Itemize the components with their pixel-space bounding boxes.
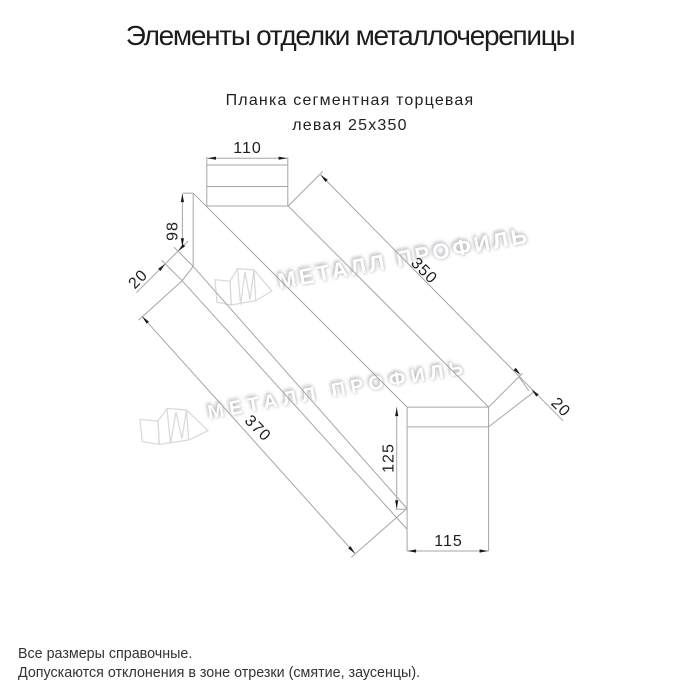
svg-text:350: 350 <box>407 255 440 288</box>
svg-text:98: 98 <box>165 221 182 241</box>
svg-text:125: 125 <box>381 443 398 473</box>
svg-text:20: 20 <box>547 395 573 421</box>
svg-text:115: 115 <box>434 533 463 550</box>
svg-text:20: 20 <box>126 267 152 293</box>
svg-text:370: 370 <box>241 412 274 445</box>
svg-text:110: 110 <box>233 140 262 157</box>
